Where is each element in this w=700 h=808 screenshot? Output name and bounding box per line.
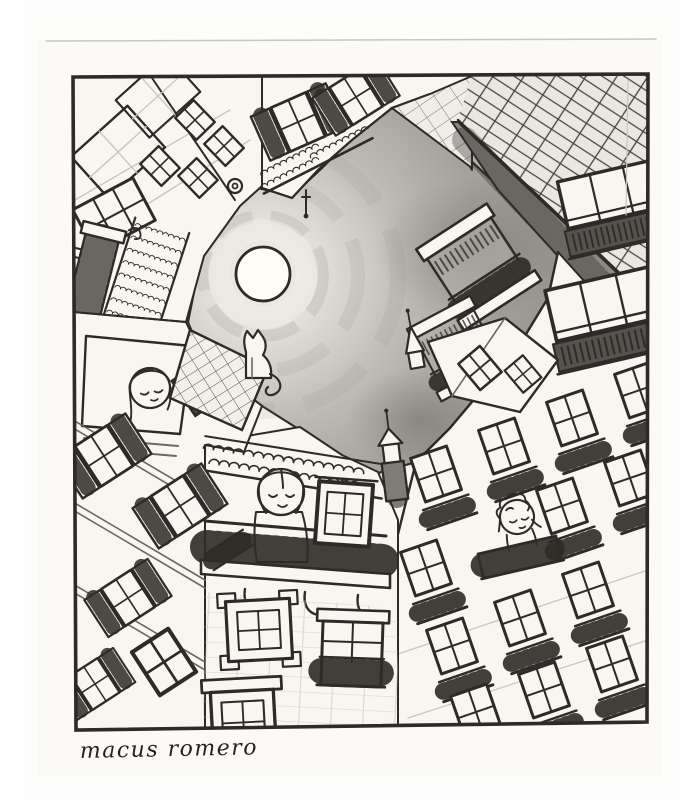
pencil-drawing: macus romero [0, 0, 700, 808]
artist-signature: macus romero [80, 735, 259, 764]
full-moon [236, 247, 290, 301]
quoin-framed-window [217, 590, 301, 670]
scanned-drawing-page: macus romero [0, 0, 700, 808]
framed-window [311, 477, 377, 547]
juliet-balcony-window [315, 609, 390, 687]
drawing-content [47, 54, 681, 767]
round-vent [228, 179, 242, 193]
